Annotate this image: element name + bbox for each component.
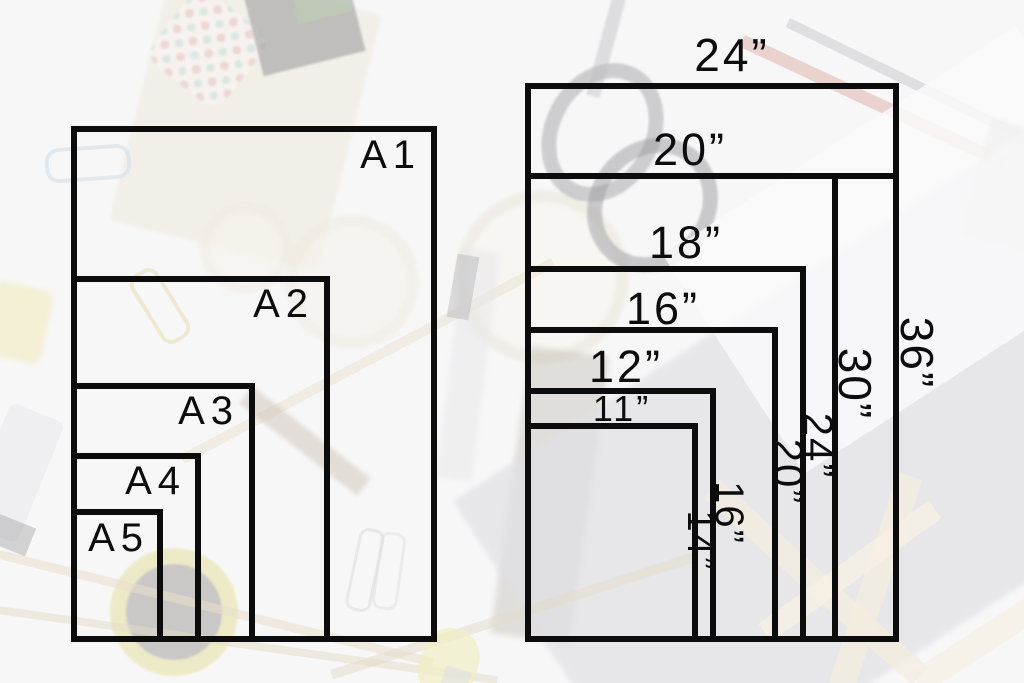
width-label-24in: 24” [694, 32, 769, 78]
frame-11x14 [525, 423, 698, 642]
inch-series-diagram: 24” 20” 18” 16” 12” 11” 36” 30” 24” 20” … [0, 0, 1024, 683]
height-label-20in: 20” [767, 439, 809, 506]
size-comparison-screen: A1 A2 A3 A4 A5 24” 20” 18” 16” 12” 11” 3… [0, 0, 1024, 683]
height-label-36in: 36” [894, 317, 940, 389]
width-label-11in: 11” [593, 391, 651, 427]
frame-20x30-top-edge-extension [832, 173, 899, 179]
width-label-12in: 12” [589, 344, 663, 389]
height-label-30in: 30” [832, 348, 878, 420]
width-label-18in: 18” [649, 220, 723, 265]
width-label-20in: 20” [653, 127, 727, 172]
height-label-14in: 14” [681, 511, 719, 572]
width-label-16in: 16” [626, 286, 700, 331]
